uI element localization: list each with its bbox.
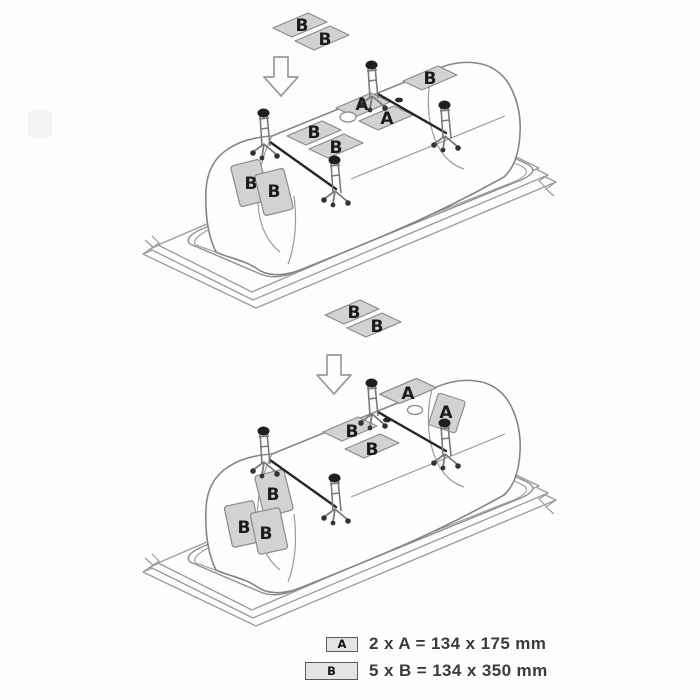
step2-floating-pads: B B xyxy=(325,300,401,337)
step2-scene: B B A A B B B B B xyxy=(143,300,556,626)
down-arrow-icon xyxy=(264,57,298,96)
overflow-hole xyxy=(408,406,423,415)
step1-floating-pads: B B xyxy=(273,13,349,50)
pad-label: B xyxy=(296,16,309,36)
pad-label: B xyxy=(371,317,384,337)
pad-label: B xyxy=(238,518,251,538)
pad-label: B xyxy=(260,524,273,544)
down-arrow-icon xyxy=(317,355,351,394)
pad-label: B xyxy=(348,303,361,323)
pad-label: B xyxy=(308,123,321,143)
scan-artifact xyxy=(28,110,52,138)
tub-assembly-step1 xyxy=(143,62,556,308)
pad-label: A xyxy=(380,109,394,129)
pad-label: A xyxy=(355,95,369,115)
drain-hole xyxy=(340,112,356,122)
pad-label: A xyxy=(439,403,453,423)
pad-label: B xyxy=(268,182,281,202)
pad-label: B xyxy=(319,30,332,50)
pad-label: B xyxy=(330,138,343,158)
installation-diagram-page: B B A A B B B B B B B xyxy=(0,0,700,700)
tub-assembly-step2 xyxy=(143,380,556,626)
pad-label: B xyxy=(267,485,280,505)
step1-scene: B B A A B B B B B xyxy=(143,13,556,308)
pad-label: A xyxy=(401,384,415,404)
bathtub-support-installation-diagram: B B A A B B B B B B B xyxy=(0,0,700,700)
pad-label: B xyxy=(245,174,258,194)
pad-label: B xyxy=(424,69,437,89)
pad-label: B xyxy=(346,422,359,442)
fixing-hole xyxy=(395,98,403,103)
pad-label: B xyxy=(366,440,379,460)
